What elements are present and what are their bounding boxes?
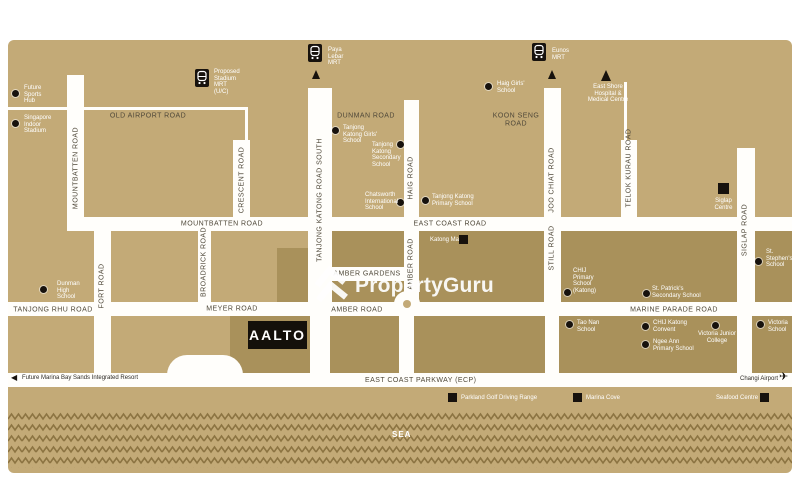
mrt-label-paya-lebar: Paya Lebar MRT <box>328 47 343 67</box>
arrow-up-icon <box>548 70 556 79</box>
poi-haig-girls: Haig Girls' School <box>497 81 524 94</box>
road-label-crescent: CRESCENT ROAD <box>238 147 246 213</box>
poi-tanjong-katong-primary: Tanjong Katong Primary School <box>432 194 474 207</box>
direction-changi-airport: Changi Airport <box>740 376 778 383</box>
road-label-mountbatten-vertical: MOUNTBATTEN ROAD <box>72 127 80 209</box>
road-label-still: STILL ROAD <box>548 225 556 270</box>
road-label-ecp: EAST COAST PARKWAY (ECP) <box>365 377 476 385</box>
propertyguru-wordmark: PropertyGuru <box>355 274 494 298</box>
building-marker <box>573 393 582 402</box>
road-label-joo-chiat: JOO CHIAT ROAD <box>548 147 556 212</box>
poi-victoria-school: Victoria School <box>768 320 788 333</box>
poi-victoria-junior-college: Victoria Junior College <box>694 331 740 344</box>
mrt-icon <box>308 44 322 62</box>
mrt-icon <box>195 69 209 87</box>
poi-katong-mall: Katong Mall <box>430 237 462 244</box>
poi-tanjong-katong-secondary: Tanjong Katong Secondary School <box>372 142 401 168</box>
hospital-triangle-icon <box>601 70 611 81</box>
propertyguru-logo-icon <box>310 262 352 310</box>
poi-chatsworth: Chatsworth International School <box>365 192 398 212</box>
road-label-koon-seng: KOON SENG ROAD <box>493 113 539 128</box>
road-old-airport <box>8 107 248 110</box>
road-amber-extension <box>399 316 414 373</box>
poi-chij-katong-convent: CHIJ Katong Convent <box>653 320 687 333</box>
building-marker <box>459 235 468 244</box>
poi-tao-nan: Tao Nan School <box>577 320 599 333</box>
poi-indoor-stadium: Singapore Indoor Stadium <box>24 115 51 135</box>
road-siglap-extension <box>737 316 752 373</box>
mrt-icon <box>532 43 546 61</box>
road-label-dunman: DUNMAN ROAD <box>337 112 395 120</box>
poi-dot <box>566 321 573 328</box>
road-label-telok-kurau: TELOK KURAU ROAD <box>625 129 633 208</box>
poi-marina-cove: Marina Cove <box>586 395 620 402</box>
poi-ngee-ann-primary: Ngee Ann Primary School <box>653 339 694 352</box>
poi-dot <box>755 258 762 265</box>
poi-chij-primary: CHIJ Primary School (Katong) <box>573 268 596 294</box>
arrow-up-icon <box>312 70 320 79</box>
road-tanjong-katong-extension <box>310 316 330 373</box>
poi-dot <box>12 90 19 97</box>
mrt-label-proposed-stadium: Proposed Stadium MRT (U/C) <box>214 69 240 95</box>
road-label-meyer: MEYER ROAD <box>206 305 258 313</box>
road-label-mountbatten: MOUNTBATTEN ROAD <box>181 220 263 228</box>
poi-east-shore-hospital: East Shore Hospital & Medical Centre <box>579 84 637 104</box>
mrt-label-eunos: Eunos MRT <box>552 48 569 61</box>
poi-seafood-centre: Seafood Centre <box>716 395 758 402</box>
poi-st-stephens: St. Stephen's School <box>766 249 793 269</box>
poi-parkland-golf: Parkland Golf Driving Range <box>461 395 537 402</box>
building-marker <box>448 393 457 402</box>
poi-dot <box>332 127 339 134</box>
road-crescent-link <box>245 108 248 142</box>
road-label-haig: HAIG ROAD <box>407 156 415 199</box>
road-label-broadrick: BROADRICK ROAD <box>200 227 208 297</box>
road-still-extension <box>545 316 559 373</box>
road-label-marine-parade: MARINE PARADE ROAD <box>630 306 718 314</box>
poi-dot <box>712 322 719 329</box>
poi-future-sports-hub: Future Sports Hub <box>24 85 41 105</box>
road-label-old-airport: OLD AIRPORT ROAD <box>110 112 186 120</box>
poi-dot <box>757 321 764 328</box>
sea-label: SEA <box>392 430 411 439</box>
road-label-fort: FORT ROAD <box>98 263 106 308</box>
poi-dot <box>642 323 649 330</box>
poi-dot <box>564 289 571 296</box>
aalto-logo: AALTO <box>248 321 307 349</box>
poi-dot <box>485 83 492 90</box>
poi-dot <box>422 197 429 204</box>
propertyguru-watermark: PropertyGuru <box>312 264 494 308</box>
building-marker <box>760 393 769 402</box>
poi-dot <box>397 199 404 206</box>
road-label-tanjong-katong-south: TANJONG KATONG ROAD SOUTH <box>316 138 324 262</box>
road-ecp-ramp <box>167 355 243 375</box>
direction-future-mbs: Future Marina Bay Sands Integrated Resor… <box>22 375 138 382</box>
road-label-siglap: SIGLAP ROAD <box>741 204 749 256</box>
sea-waves <box>8 411 792 468</box>
poi-st-patricks: St. Patrick's Secondary School <box>652 286 701 299</box>
poi-dot <box>642 341 649 348</box>
location-map: OLD AIRPORT ROAD DUNMAN ROAD KOON SENG R… <box>0 0 800 500</box>
poi-siglap-centre: Siglap Centre <box>710 198 737 211</box>
arrow-left-icon: ◀ <box>11 374 17 382</box>
airplane-icon: ✈ <box>779 370 788 383</box>
building-marker <box>718 183 729 194</box>
poi-dot <box>643 290 650 297</box>
poi-dot <box>12 120 19 127</box>
poi-dunman-high: Dunman High School <box>57 281 80 301</box>
poi-dot <box>40 286 47 293</box>
road-label-east-coast: EAST COAST ROAD <box>413 220 486 228</box>
road-label-tanjong-rhu: TANJONG RHU ROAD <box>13 306 92 314</box>
district-block <box>277 248 308 302</box>
